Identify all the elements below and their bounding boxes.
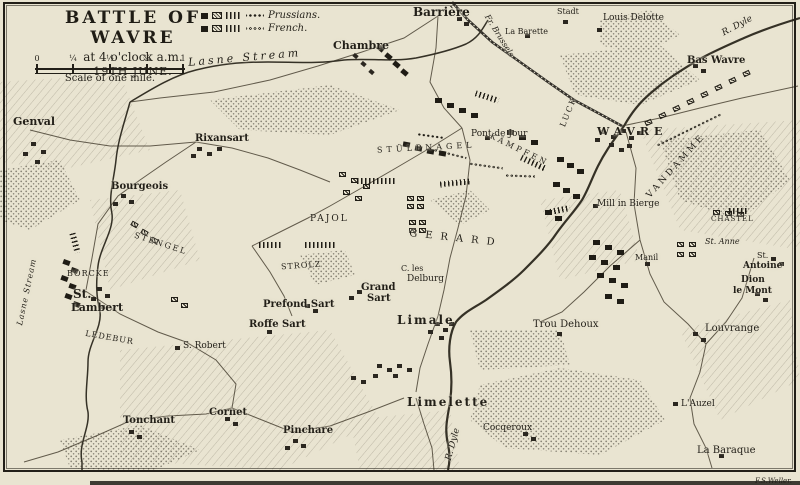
map-label: Grand [361,283,396,293]
scale-tick [36,64,38,73]
map-label: Antoine [743,262,782,271]
map-label: STÜLPNAGEL [377,141,476,154]
map-label: Genval [13,116,55,127]
map-label: Fr. Brussels [483,14,515,59]
map-label: STROLZ [281,261,322,272]
map-label: Bourgeois [111,182,168,192]
map-label: Cocqeroux [483,424,532,433]
map-label: La Baraque [697,446,756,456]
map-label: STENGEL [133,232,188,257]
scale-tick-label: 1 [180,54,185,63]
scale-tick [72,64,74,73]
map-label: St. Anne [705,238,740,246]
map-label: le Mont [733,287,772,296]
map-label: PAJOL [310,215,349,224]
map-label: Prefond Sart [263,300,334,310]
map-label: Limelette [407,396,489,408]
map-label: Delburg [407,275,444,284]
scale-bar: 0 ¼ ½ ¾ 1 Scale of one mile. [35,56,185,82]
map-label: Lasne Stream [16,258,38,326]
map-label: St. [757,252,768,260]
map-label: Cornet [209,408,247,418]
map-label: C. les [401,265,423,273]
map-label: Manil [635,254,658,262]
map-label: VANDAMME [645,133,707,201]
scan-shadow [90,481,800,485]
legend: Prussians. French. [201,9,320,35]
scale-tick-label: ¾ [143,54,151,63]
legend-row-french: French. [201,22,320,35]
scale-tick-label: 0 [34,54,39,63]
map-label: LUCK [559,96,578,128]
map-label: Chambre [333,40,389,51]
map-label: St. [73,288,91,300]
prussian-dots-icon [246,13,264,18]
scale-tick [109,64,111,73]
map-label: Lambert [71,302,123,313]
french-block-icon [201,26,208,32]
map-sheet: Lasne StreamBarrièreChambreLa BaretteSta… [0,0,800,485]
map-label: LEDEBUR [85,330,135,346]
map-label: CHASTEL [711,216,754,223]
french-ticks-icon [226,25,242,32]
map-label: Roffe Sart [249,320,306,330]
map-label: Tonchant [123,416,175,426]
prussian-hatched-block-icon [212,12,222,19]
map-label: S. Robert [183,342,226,351]
map-label: BORCKE [67,270,110,278]
map-label: R. Dyle [721,15,754,38]
scale-caption: Scale of one mile. [35,73,185,84]
map-label: La Barette [505,28,548,36]
prussian-block-icon [201,13,208,19]
map-label: Limale [397,314,455,326]
french-hatched-block-icon [212,25,222,32]
prussian-ticks-icon [226,12,242,19]
map-label: Louvrange [705,324,759,334]
legend-row-prussians: Prussians. [201,9,320,22]
scale-tick [146,64,148,73]
map-label: Sart [367,294,391,304]
map-label: Stadt [557,8,579,16]
french-circles-icon [246,26,264,31]
map-label: WAVRE [597,126,667,137]
map-label: Mill in Bierge [597,200,659,209]
map-label: Trou Dehoux [533,320,599,330]
map-label: Dion [741,276,765,285]
map-label: Barrière [413,6,470,18]
map-label: R. Dyle [445,427,462,461]
map-label: Rixansart [195,134,249,144]
legend-prussians-label: Prussians. [268,10,320,21]
map-label: Bas Wavre [687,56,745,66]
map-label: Pinchare [283,426,333,436]
scale-tick-label: ¼ [69,54,77,63]
scale-tick [182,64,184,73]
legend-french-label: French. [268,23,307,34]
map-frame: Lasne StreamBarrièreChambreLa BaretteSta… [3,2,796,472]
map-label: L'Auzel [681,400,715,409]
map-label: GERARD [409,229,503,249]
scale-tick-label: ½ [106,54,114,63]
map-label: Louis Delotte [603,14,664,23]
